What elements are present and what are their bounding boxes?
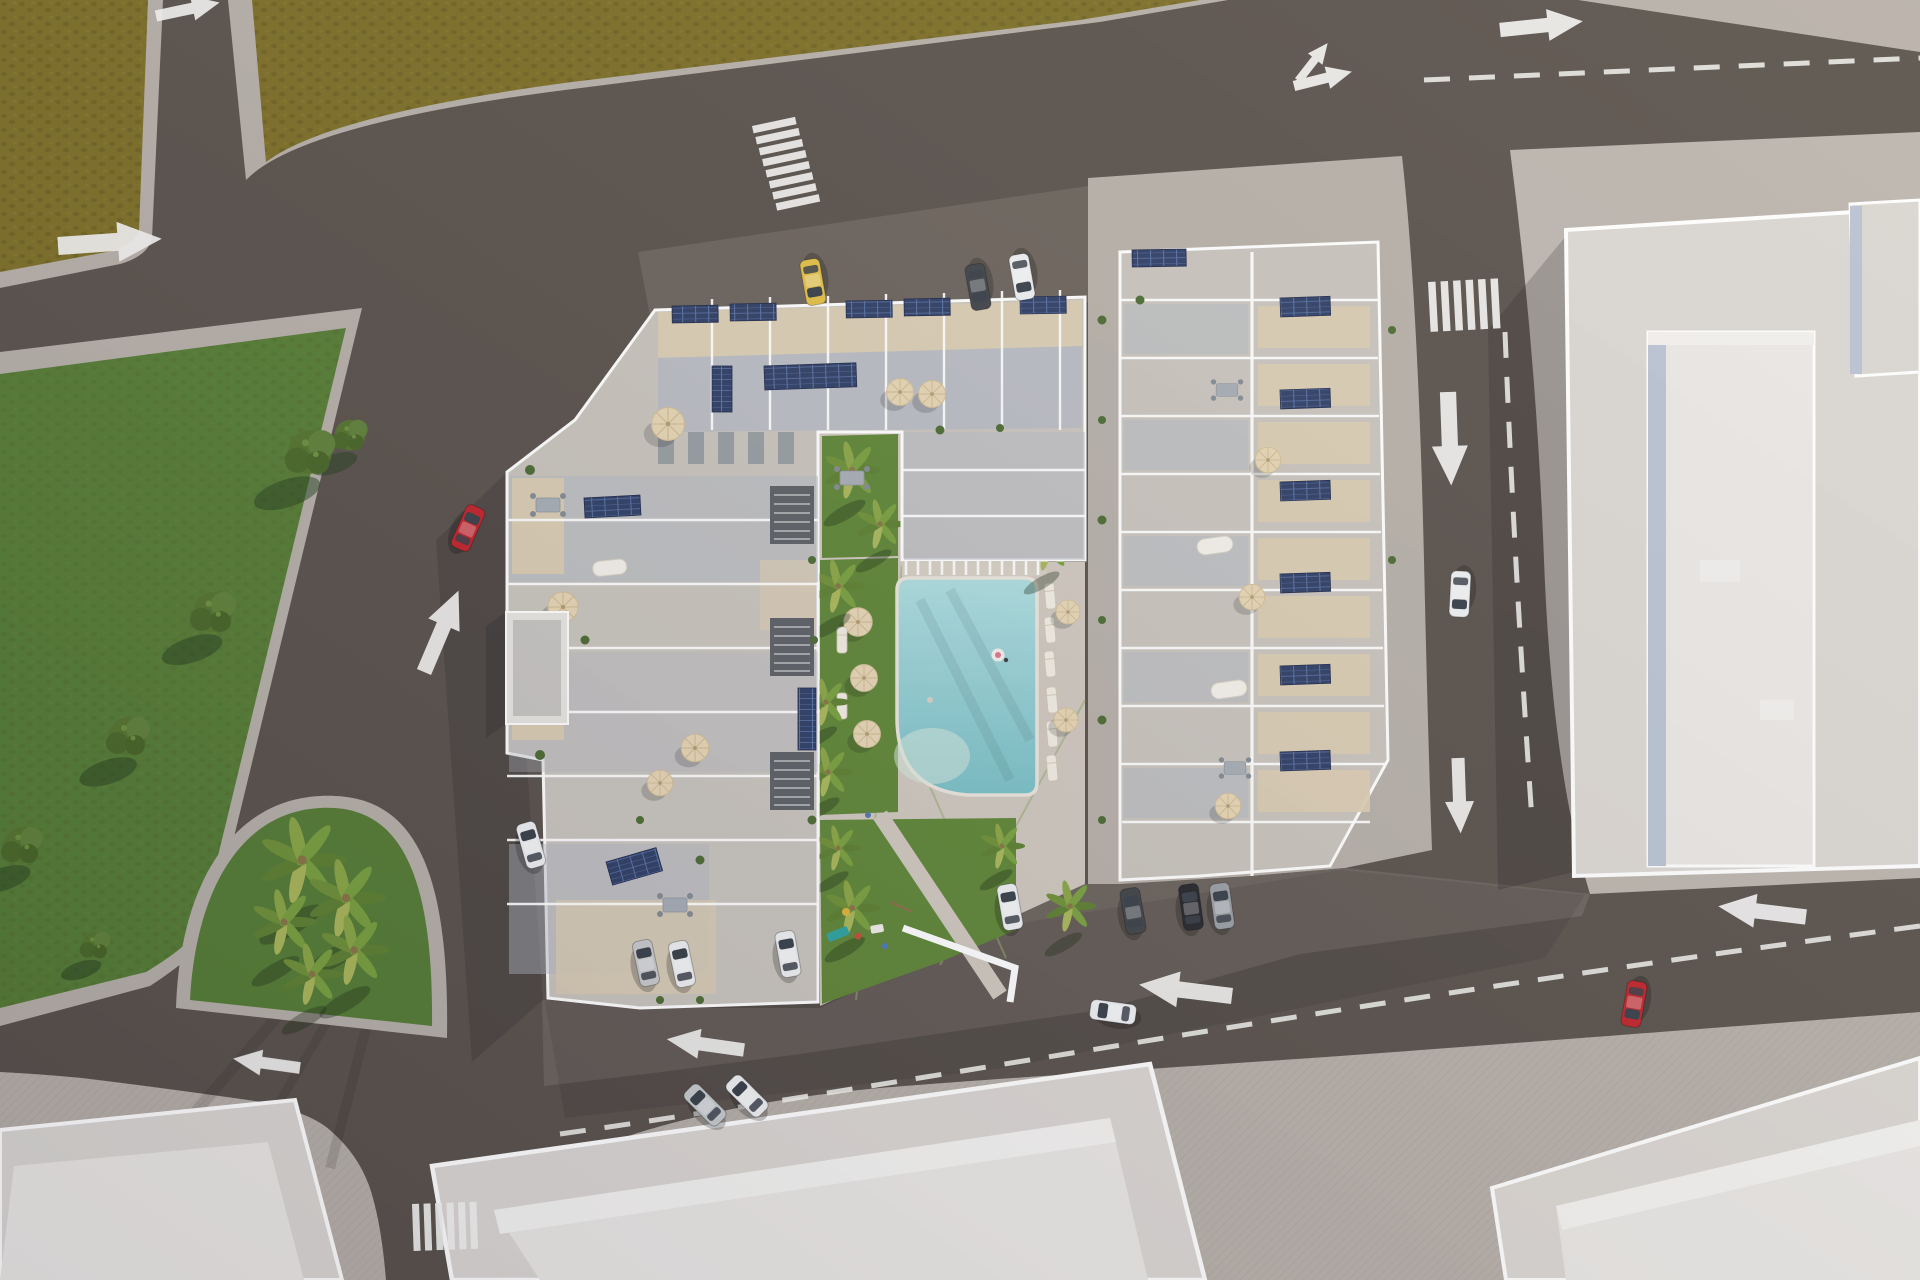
aerial-render-stage (0, 0, 1920, 1280)
site-plan-render (0, 0, 1920, 1280)
lighting-overlay (0, 0, 1920, 1280)
